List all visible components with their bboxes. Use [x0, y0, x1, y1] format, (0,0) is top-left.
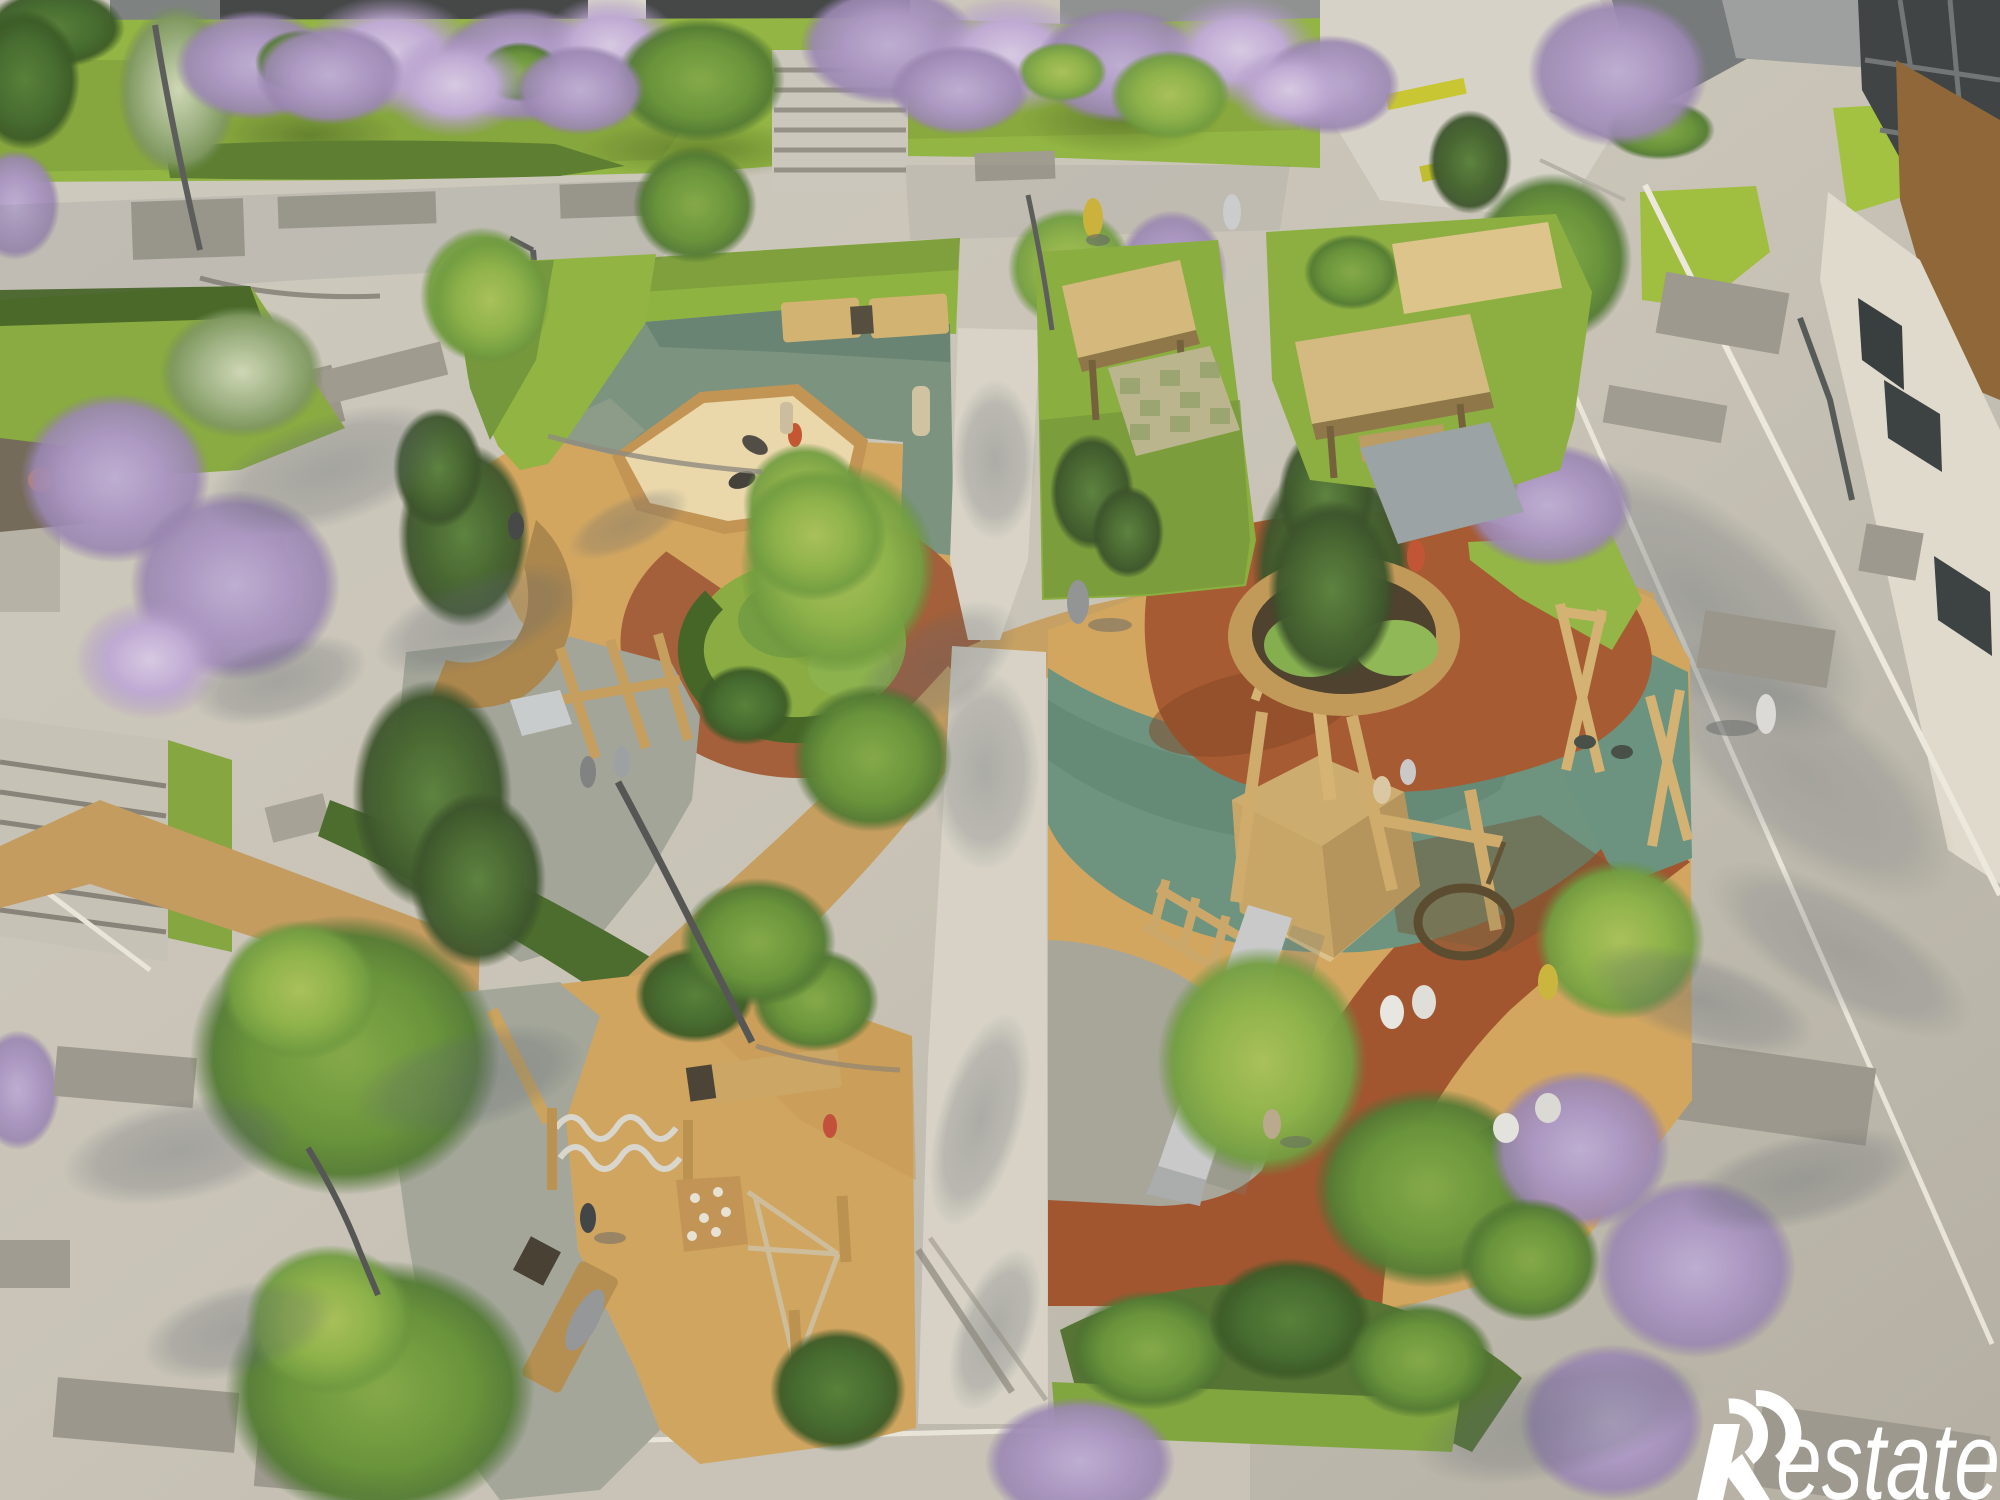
svg-text:estate: estate — [1776, 1400, 2000, 1500]
